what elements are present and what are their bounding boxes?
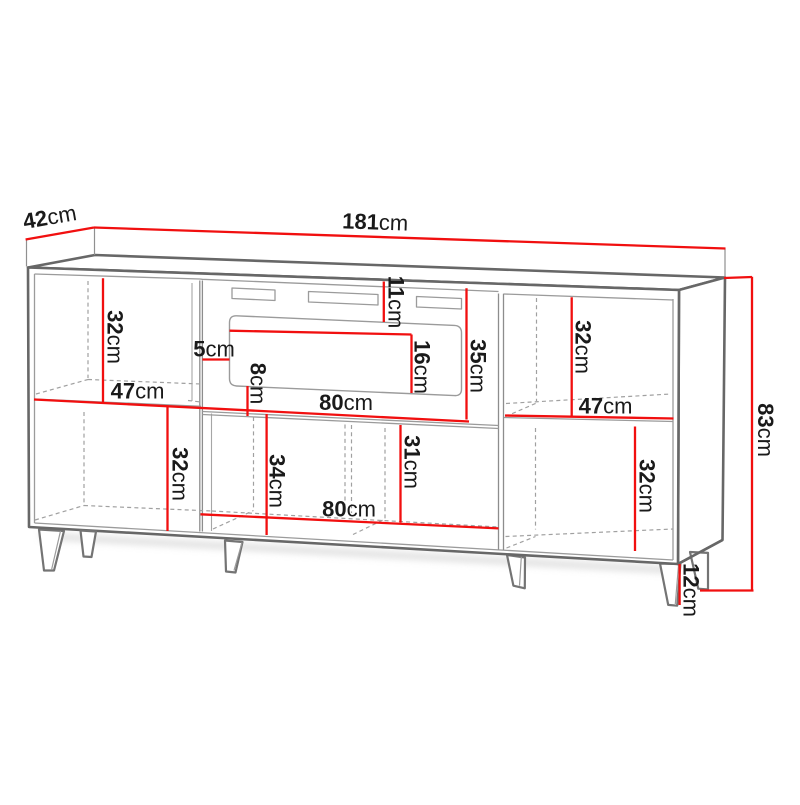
svg-text:16cm: 16cm — [410, 340, 435, 394]
svg-text:8cm: 8cm — [246, 363, 271, 405]
svg-text:5cm: 5cm — [193, 337, 235, 362]
svg-text:80cm: 80cm — [322, 497, 376, 522]
svg-text:35cm: 35cm — [466, 339, 491, 393]
svg-text:11cm: 11cm — [383, 276, 408, 329]
svg-text:47cm: 47cm — [111, 379, 165, 404]
svg-text:181cm: 181cm — [342, 208, 409, 235]
svg-text:31cm: 31cm — [400, 435, 425, 489]
svg-text:83cm: 83cm — [753, 403, 778, 457]
svg-text:32cm: 32cm — [635, 459, 660, 513]
svg-text:32cm: 32cm — [168, 447, 193, 501]
svg-text:80cm: 80cm — [319, 390, 373, 415]
svg-text:34cm: 34cm — [265, 454, 290, 508]
svg-text:47cm: 47cm — [579, 394, 633, 419]
svg-text:12cm: 12cm — [679, 563, 704, 617]
svg-text:32cm: 32cm — [103, 310, 128, 364]
svg-text:32cm: 32cm — [571, 320, 596, 374]
